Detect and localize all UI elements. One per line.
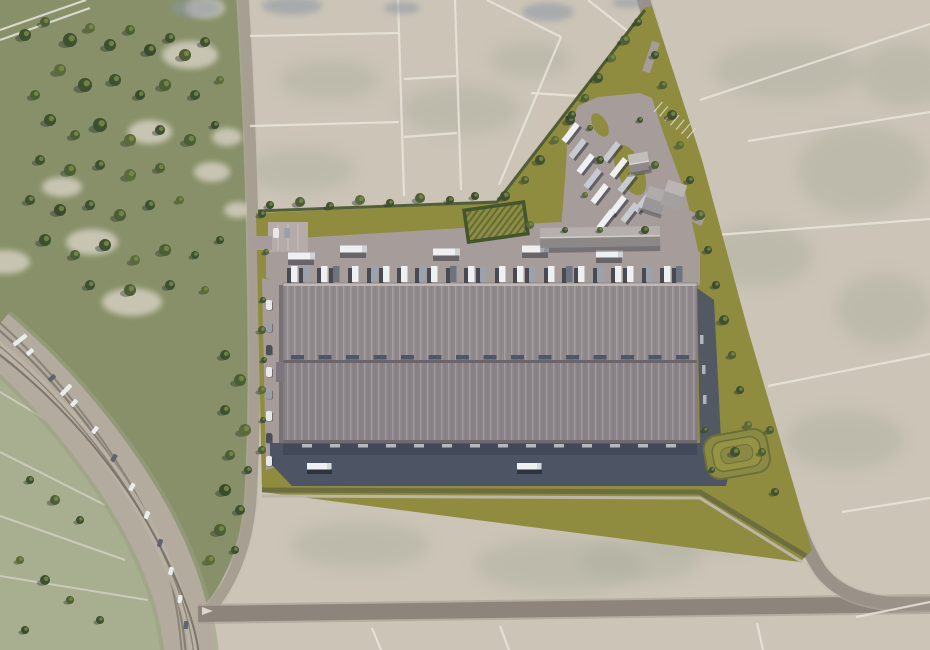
dock-canopy: [386, 444, 396, 448]
dock-trailer: [574, 266, 585, 283]
parked-car: [266, 456, 273, 467]
parked-car: [266, 389, 273, 400]
terrain-mottle: [490, 42, 570, 78]
dock-canopy: [526, 444, 536, 448]
dock-trailer: [544, 266, 555, 283]
dock-trailer: [495, 266, 506, 283]
roof-skylight: [511, 355, 524, 360]
dock-trailer: [611, 266, 622, 283]
parked-car: [284, 228, 290, 238]
sand-patch: [212, 128, 242, 146]
dock-canopy: [470, 444, 480, 448]
parked-truck: [340, 246, 367, 259]
sand-patch: [42, 177, 82, 197]
terrain-mottle: [280, 60, 380, 100]
dock-trailer: [379, 266, 390, 283]
dock-trailer: [562, 266, 573, 283]
dock-trailer: [672, 266, 683, 283]
roof-skylight: [566, 355, 579, 360]
wet-patch: [384, 2, 420, 14]
dock-trailer: [287, 266, 298, 283]
parked-truck: [433, 249, 460, 262]
roof-skylight: [291, 355, 304, 360]
roof-skylight: [401, 355, 414, 360]
dock-trailer: [660, 266, 671, 283]
terrain-mottle: [245, 148, 355, 192]
roof-skylight: [621, 355, 634, 360]
dock-trailer: [367, 266, 378, 283]
terrain-mottle: [290, 521, 430, 569]
dock-canopy: [638, 444, 648, 448]
dock-trailer: [642, 266, 653, 283]
dock-canopy: [554, 444, 564, 448]
dock-canopy: [330, 444, 340, 448]
dock-canopy: [498, 444, 508, 448]
sand-patch: [194, 162, 230, 182]
dock-trailer: [476, 266, 487, 283]
warehouse-building: [276, 283, 697, 443]
parked-car: [266, 345, 273, 356]
dock-canopy: [414, 444, 424, 448]
parked-car: [266, 433, 273, 444]
wet-patch: [522, 3, 574, 21]
parked-car: [266, 367, 273, 378]
dock-canopy: [302, 444, 312, 448]
dock-trailer: [397, 266, 408, 283]
dock-trailer: [415, 266, 426, 283]
dock-trailer: [329, 266, 340, 283]
dock-trailer: [446, 266, 457, 283]
dock-trailer: [348, 266, 359, 283]
apron-truck: [307, 463, 332, 474]
roof-skylight: [484, 355, 497, 360]
roof-skylight: [676, 355, 689, 360]
terrain-mottle: [836, 274, 930, 346]
dock-canopy: [442, 444, 452, 448]
dock-trailer: [427, 266, 438, 283]
parked-car: [266, 300, 273, 311]
roof-skylight: [594, 355, 607, 360]
dock-trailer: [593, 266, 604, 283]
dock-trailer: [513, 266, 524, 283]
dock-trailer: [623, 266, 634, 283]
roof-skylight: [429, 355, 442, 360]
roof-skylight: [319, 355, 332, 360]
parked-car: [266, 411, 273, 422]
parked-truck: [596, 251, 623, 264]
dock-canopy: [610, 444, 620, 448]
roof-skylight: [539, 355, 552, 360]
scene-canvas: [0, 0, 930, 650]
highway-vehicle: [183, 621, 188, 629]
aerial-site-plan-render: [0, 0, 930, 650]
terrain-mottle: [785, 410, 905, 470]
apron-truck: [517, 463, 542, 474]
parked-car: [266, 322, 273, 333]
roof-skylight: [649, 355, 662, 360]
dock-canopy: [666, 444, 676, 448]
roof-skylights: [291, 355, 689, 360]
roof-skylight: [374, 355, 387, 360]
parked-truck: [288, 253, 315, 266]
parked-car: [273, 228, 279, 238]
dock-canopy: [358, 444, 368, 448]
dock-canopy: [582, 444, 592, 448]
dock-trailer: [464, 266, 475, 283]
dock-trailer: [299, 266, 310, 283]
terrain-mottle: [797, 125, 927, 215]
dock-trailer: [525, 266, 536, 283]
roof-skylight: [456, 355, 469, 360]
dock-trailer: [317, 266, 328, 283]
roof-skylight: [346, 355, 359, 360]
hedge-enclosure: [464, 202, 528, 242]
roof-ridge-seam: [283, 360, 697, 363]
